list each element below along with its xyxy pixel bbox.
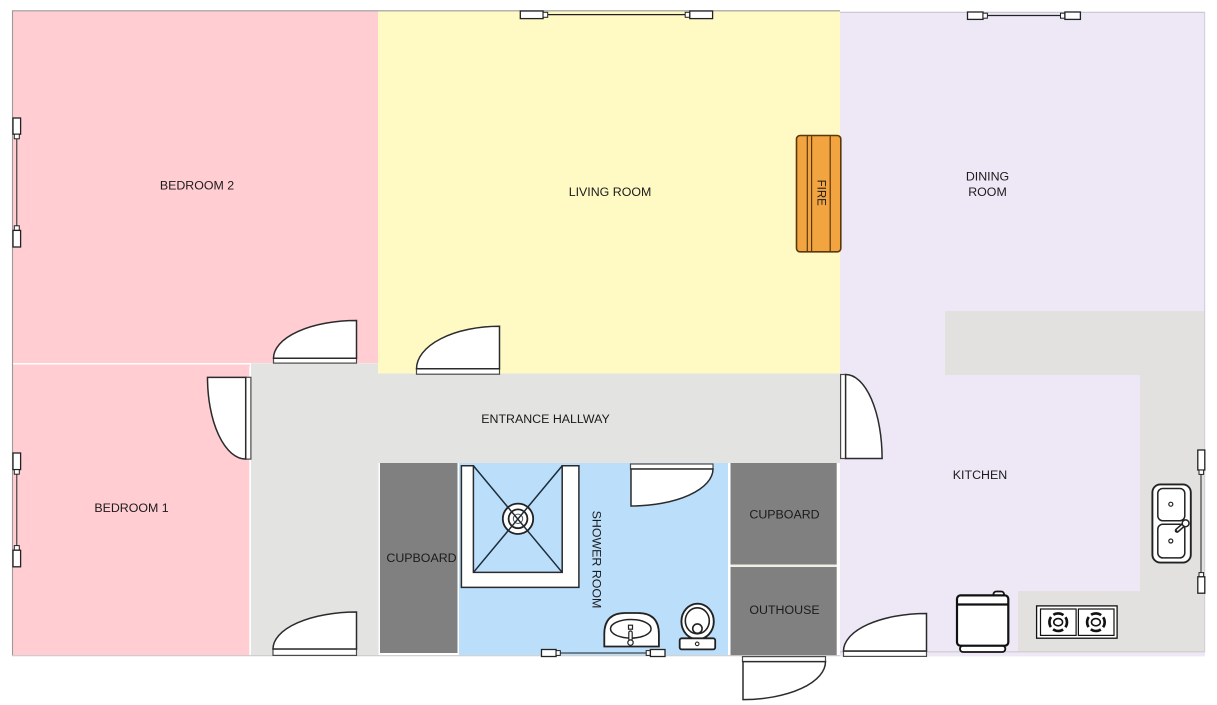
svg-text:CUPBOARD: CUPBOARD bbox=[386, 551, 456, 565]
svg-text:ROOM: ROOM bbox=[968, 185, 1007, 199]
svg-text:FIRE: FIRE bbox=[815, 180, 827, 207]
svg-text:LIVING ROOM: LIVING ROOM bbox=[569, 185, 652, 199]
svg-text:KITCHEN: KITCHEN bbox=[953, 468, 1007, 482]
svg-text:SHOWER ROOM: SHOWER ROOM bbox=[589, 511, 603, 609]
svg-text:ENTRANCE HALLWAY: ENTRANCE HALLWAY bbox=[481, 412, 610, 426]
svg-text:DINING: DINING bbox=[966, 170, 1009, 184]
svg-text:BEDROOM 2: BEDROOM 2 bbox=[160, 179, 234, 193]
svg-text:BEDROOM 1: BEDROOM 1 bbox=[94, 501, 168, 515]
svg-text:OUTHOUSE: OUTHOUSE bbox=[749, 603, 819, 617]
svg-text:CUPBOARD: CUPBOARD bbox=[749, 508, 819, 522]
